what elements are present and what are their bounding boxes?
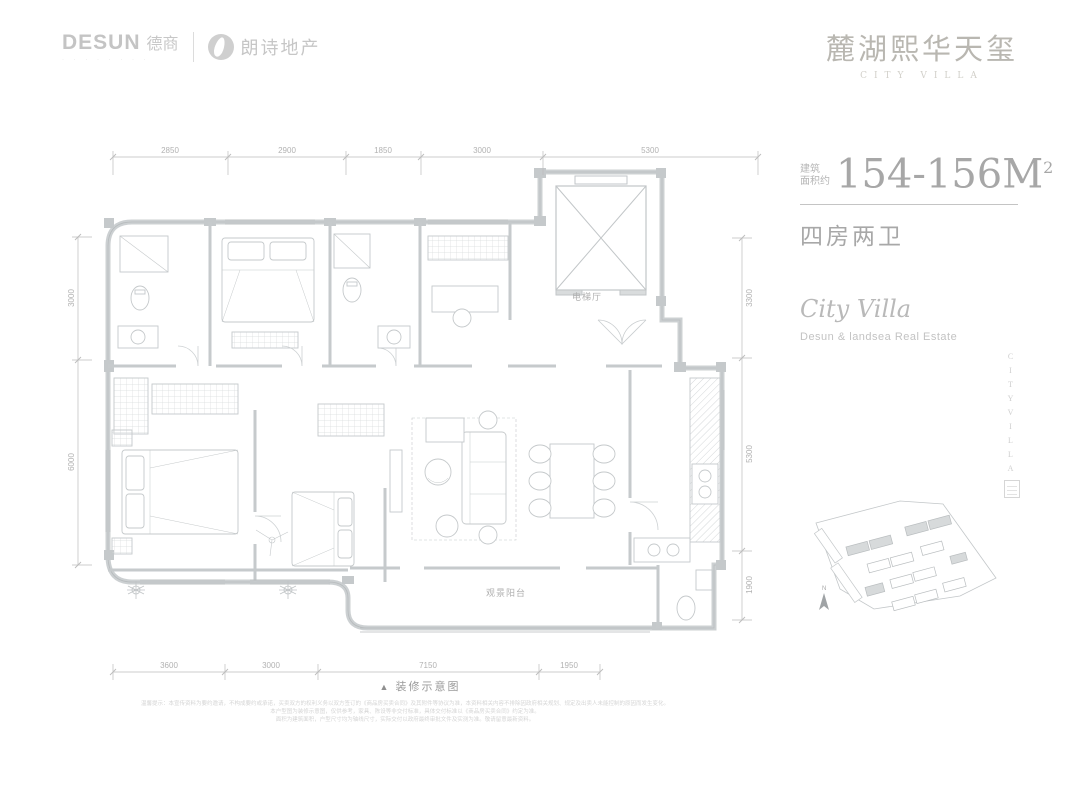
landsea-logo: 朗诗地产 xyxy=(208,34,321,60)
dim-top-1: 2850 xyxy=(161,146,179,155)
landsea-logo-text: 朗诗地产 xyxy=(241,34,321,60)
desun-logo-subtext: · · · · · · · · xyxy=(62,57,179,63)
header-logos: DESUN 德商 · · · · · · · · 朗诗地产 xyxy=(62,30,321,63)
bedroom-2-furniture xyxy=(222,238,314,348)
entry-door-icon xyxy=(598,320,646,344)
area-value: 154-156M2 xyxy=(836,148,1053,194)
dim-top-3: 1850 xyxy=(374,146,392,155)
caption-triangle-icon: ▲ xyxy=(380,682,391,692)
dim-bottom-1: 3600 xyxy=(160,661,178,670)
interior-walls xyxy=(108,222,662,628)
area-prefix-line1: 建筑 xyxy=(800,164,830,176)
desun-logo: DESUN 德商 · · · · · · · · xyxy=(62,30,179,63)
balcony-label: 观景阳台 xyxy=(486,587,526,598)
area-number: 154-156M xyxy=(836,151,1043,197)
elevator-hall-label: 电梯厅 xyxy=(572,291,602,302)
area-prefix-line2: 面积约 xyxy=(800,176,830,188)
logo-divider xyxy=(193,32,194,62)
rooms-label: 四房两卫 xyxy=(800,217,1018,251)
bedroom-3-furniture xyxy=(256,404,384,566)
info-panel: 建筑 面积约 154-156M2 四房两卫 City Villa Desun &… xyxy=(800,148,1018,343)
brand-block: 麓湖熙华天玺 CITY VILLA xyxy=(826,26,1018,81)
info-divider xyxy=(800,204,1018,205)
desun-logo-text: DESUN xyxy=(62,31,141,55)
brand-subtitle: CITY VILLA xyxy=(826,71,1018,81)
kitchen-fixtures xyxy=(634,378,720,562)
dim-right-2: 5300 xyxy=(745,445,754,463)
bathroom-1-fixtures xyxy=(118,236,168,348)
page: DESUN 德商 · · · · · · · · 朗诗地产 麓湖熙华天玺 CIT… xyxy=(0,0,1080,810)
dim-bottom-2: 3000 xyxy=(262,661,280,670)
dim-top-2: 2900 xyxy=(278,146,296,155)
elevator xyxy=(556,176,646,295)
master-bedroom-furniture xyxy=(112,378,238,554)
dim-left-1: 3000 xyxy=(67,289,76,307)
dim-top-5: 5300 xyxy=(641,146,659,155)
dim-left-2: 6000 xyxy=(67,453,76,471)
disclaimer-text: 温馨提示：本宣传资料为要约邀请，不构成要约或承诺，买卖双方的权利义务以双方签订的… xyxy=(60,700,750,724)
study-furniture xyxy=(428,236,508,327)
disclaimer-line-2: 本户型图为装修示意图，仅供参考，家具、陈设等非交付标准，具体交付标准以《商品房买… xyxy=(60,708,750,716)
dim-top-4: 3000 xyxy=(473,146,491,155)
plan-caption: ▲装修示意图 xyxy=(120,678,720,694)
living-room-furniture xyxy=(390,411,516,544)
site-plan: N xyxy=(800,468,1030,638)
dim-bottom-4: 1950 xyxy=(560,661,578,670)
floor-plan: 电梯厅 xyxy=(0,120,800,700)
disclaimer-line-1: 温馨提示：本宣传资料为要约邀请，不构成要约或承诺，买卖双方的权利义务以双方签订的… xyxy=(60,700,750,708)
dim-right-1: 3300 xyxy=(745,289,754,307)
disclaimer-line-3: 面积为建筑面积，户型尺寸均为轴线尺寸，实际交付以政府最终审批文件及实测为准。敬请… xyxy=(60,716,750,724)
bathroom-2-fixtures xyxy=(334,234,410,348)
landsea-logo-icon xyxy=(208,34,234,60)
caption-text: 装修示意图 xyxy=(395,681,460,693)
north-label: N xyxy=(822,586,826,592)
tagline: City Villa xyxy=(800,295,1018,323)
area-prefix: 建筑 面积约 xyxy=(800,164,830,194)
dim-right-3: 1900 xyxy=(745,576,754,594)
dim-bottom-3: 7150 xyxy=(419,661,437,670)
north-arrow: N xyxy=(819,586,829,610)
area-sup: 2 xyxy=(1043,158,1053,177)
vertical-brand-text: CITYVILLA xyxy=(1006,352,1015,478)
bathroom-3-fixtures xyxy=(677,570,712,620)
desun-logo-cn: 德商 xyxy=(147,30,179,54)
dining-furniture xyxy=(529,444,615,518)
tagline-sub: Desun & landsea Real Estate xyxy=(800,331,1018,343)
brand-title: 麓湖熙华天玺 xyxy=(826,26,1018,68)
